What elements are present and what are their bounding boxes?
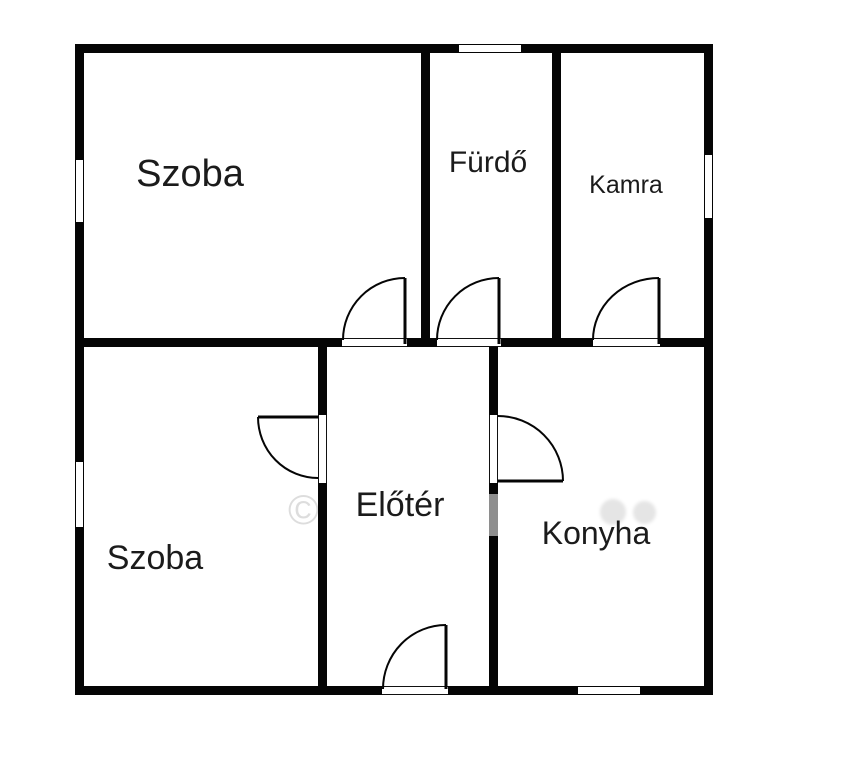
window-szoba-bottom-left [75, 462, 84, 527]
wall-szoba-furdo [421, 44, 430, 347]
window-kamra-right [704, 155, 713, 218]
door-entrance [383, 625, 446, 689]
door-konyha [498, 416, 563, 481]
door-opening-entrance [382, 686, 448, 695]
room-label-konyha: Konyha [500, 510, 692, 557]
watermark-wall-fade [489, 494, 498, 536]
wall-szoba-eloter [318, 338, 327, 695]
floor-plan: Szoba Fürdő Kamra Szoba Előtér Konyha © [0, 0, 841, 768]
door-szoba-bottom [258, 417, 318, 478]
watermark-smudge [600, 499, 626, 525]
door-kamra [593, 278, 659, 344]
wall-outer-top [75, 44, 713, 53]
room-label-szoba-top: Szoba [100, 148, 280, 200]
room-label-furdo: Fürdő [428, 140, 548, 186]
door-opening-szoba-bottom [318, 415, 327, 483]
door-furdo [437, 278, 499, 344]
door-opening-furdo [437, 338, 501, 347]
room-label-eloter: Előtér [328, 482, 472, 528]
wall-furdo-kamra [552, 44, 561, 347]
watermark-smudge [633, 501, 656, 524]
door-opening-konyha [489, 415, 498, 483]
wall-outer-left [75, 44, 84, 695]
door-szoba-top [343, 278, 405, 344]
room-label-szoba-bottom: Szoba [80, 534, 230, 583]
wall-outer-right [704, 44, 713, 695]
window-furdo-top [459, 44, 521, 53]
room-label-kamra: Kamra [561, 162, 691, 208]
door-opening-szoba-top [342, 338, 407, 347]
watermark-copyright-icon: © [288, 486, 319, 534]
window-szoba-top-left [75, 160, 84, 222]
door-opening-kamra [593, 338, 660, 347]
window-konyha-bottom [578, 686, 640, 695]
